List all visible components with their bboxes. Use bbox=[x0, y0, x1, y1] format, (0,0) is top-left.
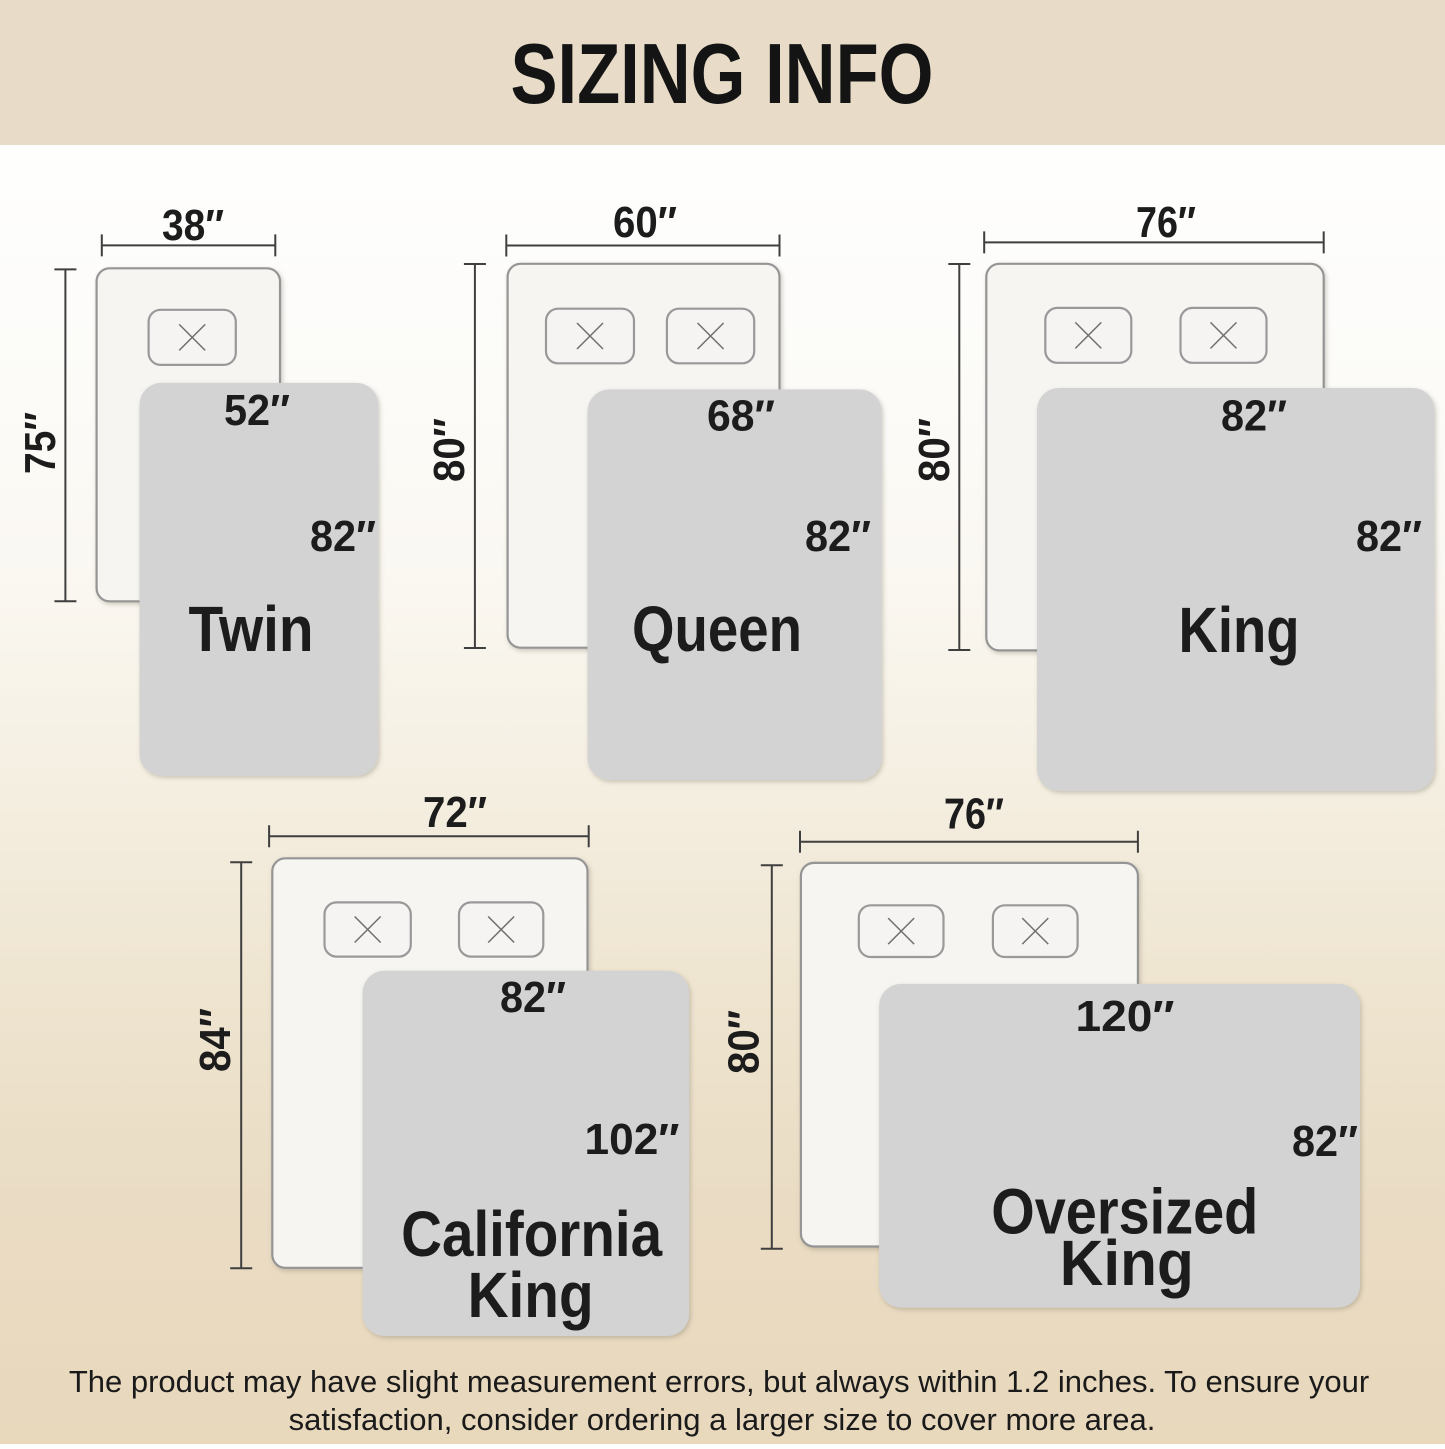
svg-text:102″: 102″ bbox=[585, 1115, 680, 1164]
svg-text:82″: 82″ bbox=[310, 512, 376, 561]
svg-text:82″: 82″ bbox=[805, 512, 871, 561]
svg-text:82″: 82″ bbox=[1356, 512, 1422, 561]
svg-text:38″: 38″ bbox=[162, 201, 224, 250]
svg-text:King: King bbox=[1060, 1227, 1194, 1299]
svg-text:82″: 82″ bbox=[1221, 392, 1287, 441]
svg-text:Twin: Twin bbox=[189, 593, 314, 665]
svg-text:68″: 68″ bbox=[707, 392, 775, 441]
svg-text:72″: 72″ bbox=[423, 788, 487, 837]
svg-text:82″: 82″ bbox=[1292, 1117, 1358, 1166]
svg-text:75″: 75″ bbox=[16, 412, 65, 474]
svg-text:76″: 76″ bbox=[1136, 198, 1196, 247]
svg-text:120″: 120″ bbox=[1076, 992, 1175, 1041]
svg-text:80″: 80″ bbox=[425, 418, 474, 482]
svg-text:76″: 76″ bbox=[944, 790, 1004, 839]
svg-text:satisfaction, consider orderin: satisfaction, consider ordering a larger… bbox=[289, 1402, 1156, 1437]
svg-text:80″: 80″ bbox=[720, 1010, 769, 1074]
svg-text:SIZING INFO: SIZING INFO bbox=[511, 27, 934, 122]
svg-text:King: King bbox=[468, 1259, 594, 1331]
svg-text:52″: 52″ bbox=[224, 386, 290, 435]
svg-text:The product may have slight me: The product may have slight measurement … bbox=[69, 1364, 1369, 1399]
svg-text:84″: 84″ bbox=[191, 1008, 240, 1072]
svg-text:Queen: Queen bbox=[632, 593, 802, 665]
svg-text:60″: 60″ bbox=[613, 198, 677, 247]
svg-text:King: King bbox=[1179, 594, 1300, 666]
svg-text:82″: 82″ bbox=[500, 973, 566, 1022]
svg-text:80″: 80″ bbox=[910, 418, 959, 482]
